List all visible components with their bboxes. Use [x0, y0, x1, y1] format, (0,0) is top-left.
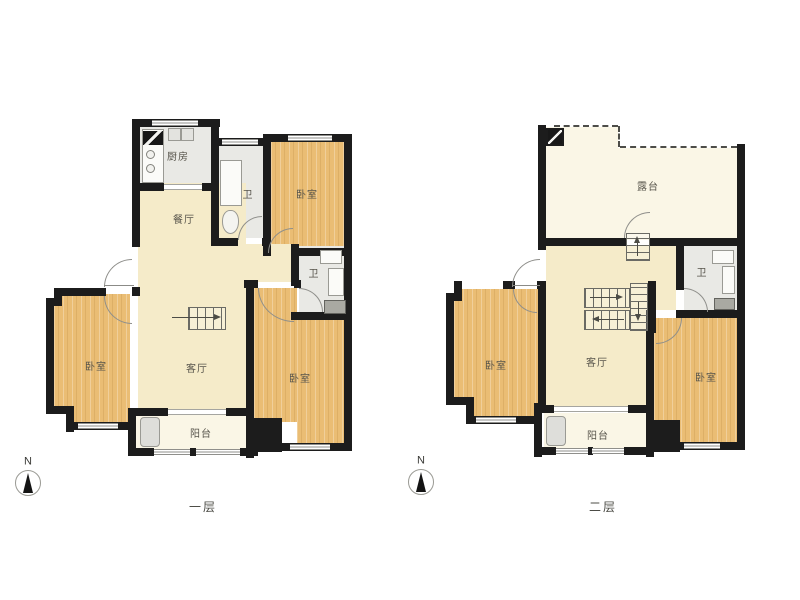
shower-tray-icon — [714, 298, 735, 310]
wall-segment — [446, 293, 454, 403]
stair-arrow-icon — [616, 294, 623, 300]
wall-segment — [294, 280, 301, 288]
stair-direction-line — [172, 317, 216, 318]
window — [152, 120, 198, 126]
entry-door-arc — [104, 259, 132, 287]
roof-drain-icon — [548, 130, 562, 144]
wall-segment — [344, 134, 352, 451]
bath-counter — [220, 160, 242, 206]
room-label-bedroom: 卧室 — [85, 363, 107, 373]
bath-sink — [320, 250, 342, 264]
wall-segment — [61, 288, 106, 296]
stair-direction-line — [637, 242, 638, 256]
terrace-dashed-edge — [620, 146, 737, 148]
compass-needle-icon — [416, 472, 426, 492]
wall-segment — [676, 238, 745, 246]
room-label-bedroom: 卧室 — [289, 375, 311, 385]
wall-segment — [737, 144, 745, 450]
window — [196, 449, 240, 455]
floorplan-stage: 厨房 餐厅 卫 卧室 卫 客厅 卧室 卧室 阳台 一层 N — [0, 0, 800, 600]
staircase-upper-run — [584, 288, 630, 308]
sliding-door — [554, 406, 628, 412]
wall-segment — [538, 238, 626, 246]
terrace-dashed-edge — [554, 125, 618, 127]
bath-cabinet — [722, 266, 735, 294]
stair-direction-line — [596, 319, 624, 320]
wall-segment — [132, 119, 140, 191]
stove-burner-icon — [146, 164, 155, 173]
wall-segment — [211, 238, 238, 246]
sliding-door — [168, 409, 226, 415]
room-label-balcony: 阳台 — [587, 432, 609, 442]
wall-segment — [534, 447, 556, 455]
wall-segment — [538, 125, 546, 250]
window — [684, 443, 720, 449]
window — [592, 448, 624, 454]
floor2-bedroom-left-notch — [444, 405, 468, 421]
room-label-bedroom: 卧室 — [485, 362, 507, 372]
entry-door-leaf — [512, 285, 540, 286]
compass-needle-icon — [23, 473, 33, 493]
wall-segment — [676, 246, 684, 290]
floor1-caption: 一层 — [189, 501, 217, 513]
north-label: N — [417, 456, 425, 467]
room-label-balcony: 阳台 — [190, 430, 212, 440]
staircase-lower-run — [584, 310, 630, 330]
bath-sink — [712, 250, 734, 264]
double-sink-icon — [168, 128, 194, 141]
window — [556, 448, 588, 454]
sliding-door — [164, 184, 202, 190]
room-label-kitchen: 厨房 — [167, 153, 189, 163]
wall-segment — [46, 298, 54, 412]
floor1-bedroom-left-notch — [44, 414, 66, 430]
wall-segment — [132, 183, 140, 247]
wall-segment — [128, 448, 154, 456]
window — [290, 444, 330, 450]
stair-arrow-icon — [592, 316, 599, 322]
window — [222, 139, 258, 145]
room-label-bath: 卫 — [243, 191, 254, 201]
wall-segment — [538, 285, 546, 407]
staircase-turn — [630, 283, 648, 331]
floor2-caption: 二层 — [589, 501, 617, 513]
north-label: N — [24, 457, 32, 468]
stove-burner-icon — [146, 150, 155, 159]
room-label-bath: 卫 — [697, 269, 708, 279]
room-label-living: 客厅 — [586, 359, 608, 369]
toilet-icon — [222, 210, 239, 234]
room-label-dining: 餐厅 — [173, 216, 195, 226]
window — [476, 417, 516, 423]
stair-arrow-icon — [634, 236, 640, 243]
washing-machine-icon — [140, 417, 160, 447]
bath-cabinet — [328, 268, 344, 296]
stair-direction-line — [590, 297, 618, 298]
room-label-living: 客厅 — [186, 365, 208, 375]
room-label-bedroom: 卧室 — [695, 374, 717, 384]
window — [288, 135, 332, 141]
stair-arrow-icon — [214, 314, 221, 320]
wall-segment — [628, 405, 654, 413]
washing-machine-icon — [546, 416, 566, 446]
kitchen-drainboard-icon — [143, 131, 163, 145]
terrace-dashed-edge — [618, 126, 620, 147]
window — [154, 449, 190, 455]
wall-segment — [534, 405, 554, 413]
entry-door-arc — [512, 259, 540, 287]
room-label-terrace: 露台 — [637, 183, 659, 193]
wall-segment — [650, 238, 678, 246]
wall-segment — [226, 408, 254, 416]
entry-door-leaf — [104, 285, 134, 286]
stair-arrow-icon — [635, 314, 641, 321]
room-label-bath: 卫 — [309, 270, 320, 280]
wall-segment — [132, 287, 140, 296]
room-label-bedroom: 卧室 — [296, 191, 318, 201]
shower-tray-icon — [324, 300, 346, 314]
window — [78, 423, 118, 429]
